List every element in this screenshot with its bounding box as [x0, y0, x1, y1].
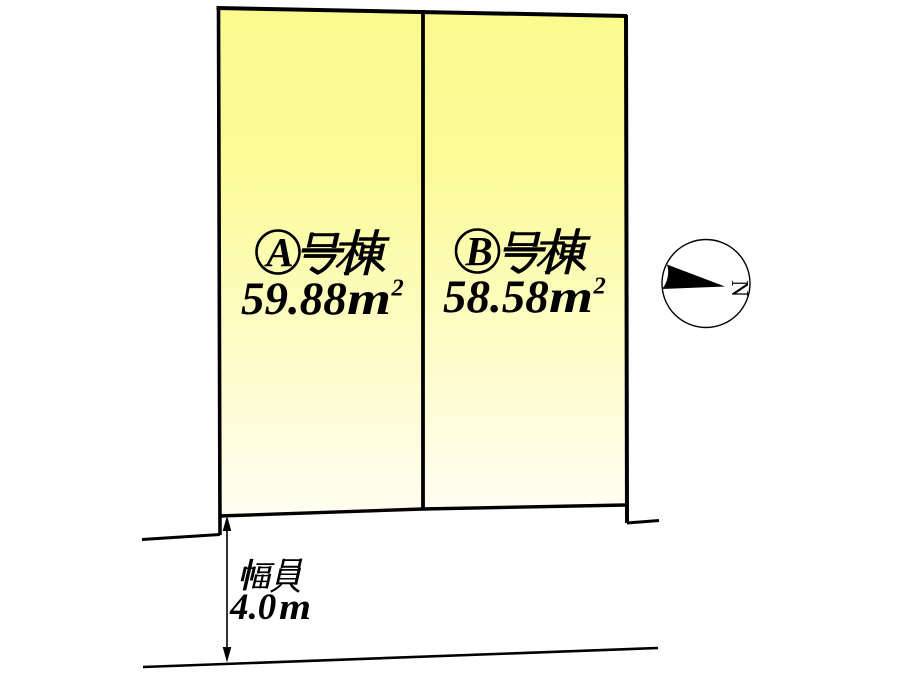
svg-text:m: m [279, 587, 311, 628]
svg-text:59.88: 59.88 [241, 273, 347, 325]
svg-text:A: A [263, 229, 293, 275]
svg-text:B: B [464, 228, 492, 274]
svg-text:58.58: 58.58 [443, 271, 549, 323]
svg-text:2: 2 [391, 275, 404, 302]
svg-text:4.0: 4.0 [229, 587, 276, 628]
svg-text:m: m [549, 271, 593, 323]
svg-text:m: m [347, 273, 391, 325]
svg-text:2: 2 [593, 273, 606, 300]
svg-text:N: N [726, 280, 752, 297]
